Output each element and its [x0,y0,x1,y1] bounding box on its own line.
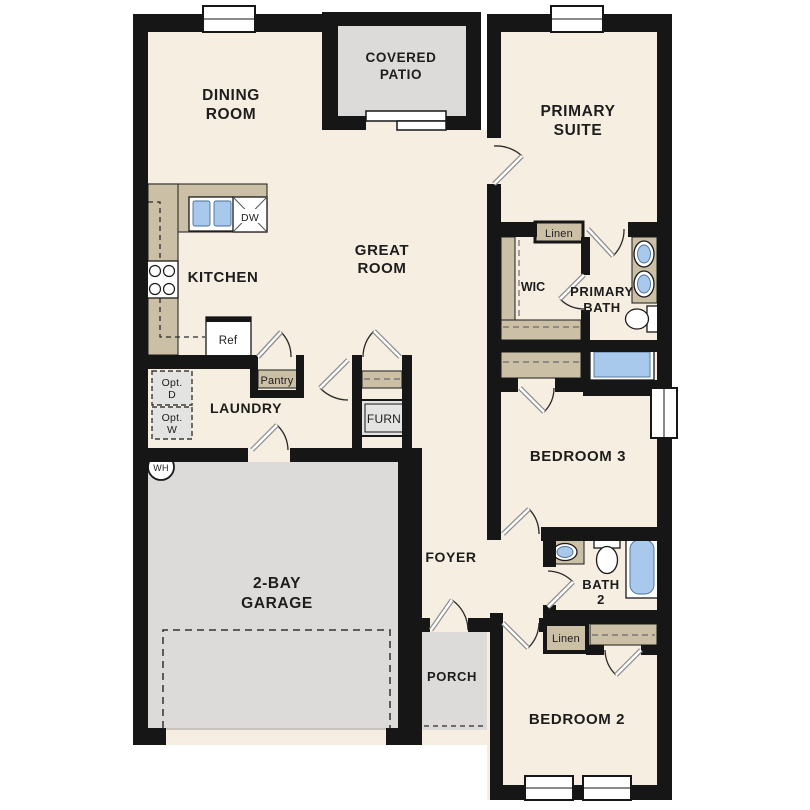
primary-vanity [632,237,657,303]
room-label-primary-line2: SUITE [554,122,603,139]
room-label-bedroom2: BEDROOM 2 [529,711,625,728]
pantry-label: Pantry [261,375,294,387]
furnace-closet [361,371,407,436]
window-bedroom3 [651,388,677,438]
room-label-pbath-line1: PRIMARY [570,284,634,299]
room-label-laundry: LAUNDRY [210,400,282,416]
room-label-garage-line1: 2-BAY [253,575,301,592]
exterior-gap [481,12,487,130]
dryer-optional: Opt. D [152,371,192,405]
furnace-label: FURN [367,412,401,426]
washer-optional: Opt. W [152,407,192,439]
room-label-wic: WIC [521,280,545,294]
bath2-tub [626,536,658,598]
linen-shelf-primary: Linen [535,222,583,242]
floor-plan-page: DW Ref Opt. D Opt. W WH [0,0,810,810]
room-label-porch: PORCH [427,669,477,684]
water-heater-label: WH [153,463,168,473]
floor-plan: DW Ref Opt. D Opt. W WH [0,0,810,810]
bath2-toilet [594,538,620,574]
room-label-foyer: FOYER [425,549,476,565]
room-label-garage-line2: GARAGE [241,595,313,612]
linen-primary-label: Linen [545,228,573,240]
room-label-patio-line1: COVERED [366,50,437,65]
room-label-bath2-line1: BATH [582,577,620,592]
opt-dryer-line2: D [168,389,176,401]
room-label-bedroom3: BEDROOM 3 [530,448,626,465]
kitchen-sink [189,197,234,231]
range [146,261,178,298]
room-label-great-line1: GREAT [355,242,409,259]
refrigerator-label: Ref [219,335,238,347]
room-label-dining-line1: DINING [202,87,260,104]
primary-shower [590,349,654,380]
refrigerator: Ref [206,317,251,357]
linen-shelf-hall: Linen [545,624,587,652]
opt-washer-line1: Opt. [162,412,183,424]
dishwasher-label: DW [241,212,259,224]
linen-hall-label: Linen [552,633,580,645]
room-label-dining-line2: ROOM [206,106,257,123]
room-label-bath2-line2: 2 [597,592,605,607]
opt-washer-line2: W [167,424,177,436]
room-label-pbath-line2: BATH [583,300,621,315]
window-dining [203,6,255,32]
room-label-kitchen: KITCHEN [188,269,259,286]
window-bedroom2-right [583,776,631,800]
room-label-patio-line2: PATIO [380,67,422,82]
window-primary-suite [551,6,603,32]
room-label-primary-line1: PRIMARY [540,103,615,120]
opt-dryer-line1: Opt. [162,377,183,389]
bedroom2-closet-shelf [590,624,657,645]
dishwasher: DW [233,197,267,232]
bedroom3-closet-shelf [501,352,581,378]
window-bedroom2-left [525,776,573,800]
room-label-great-line2: ROOM [357,260,406,277]
